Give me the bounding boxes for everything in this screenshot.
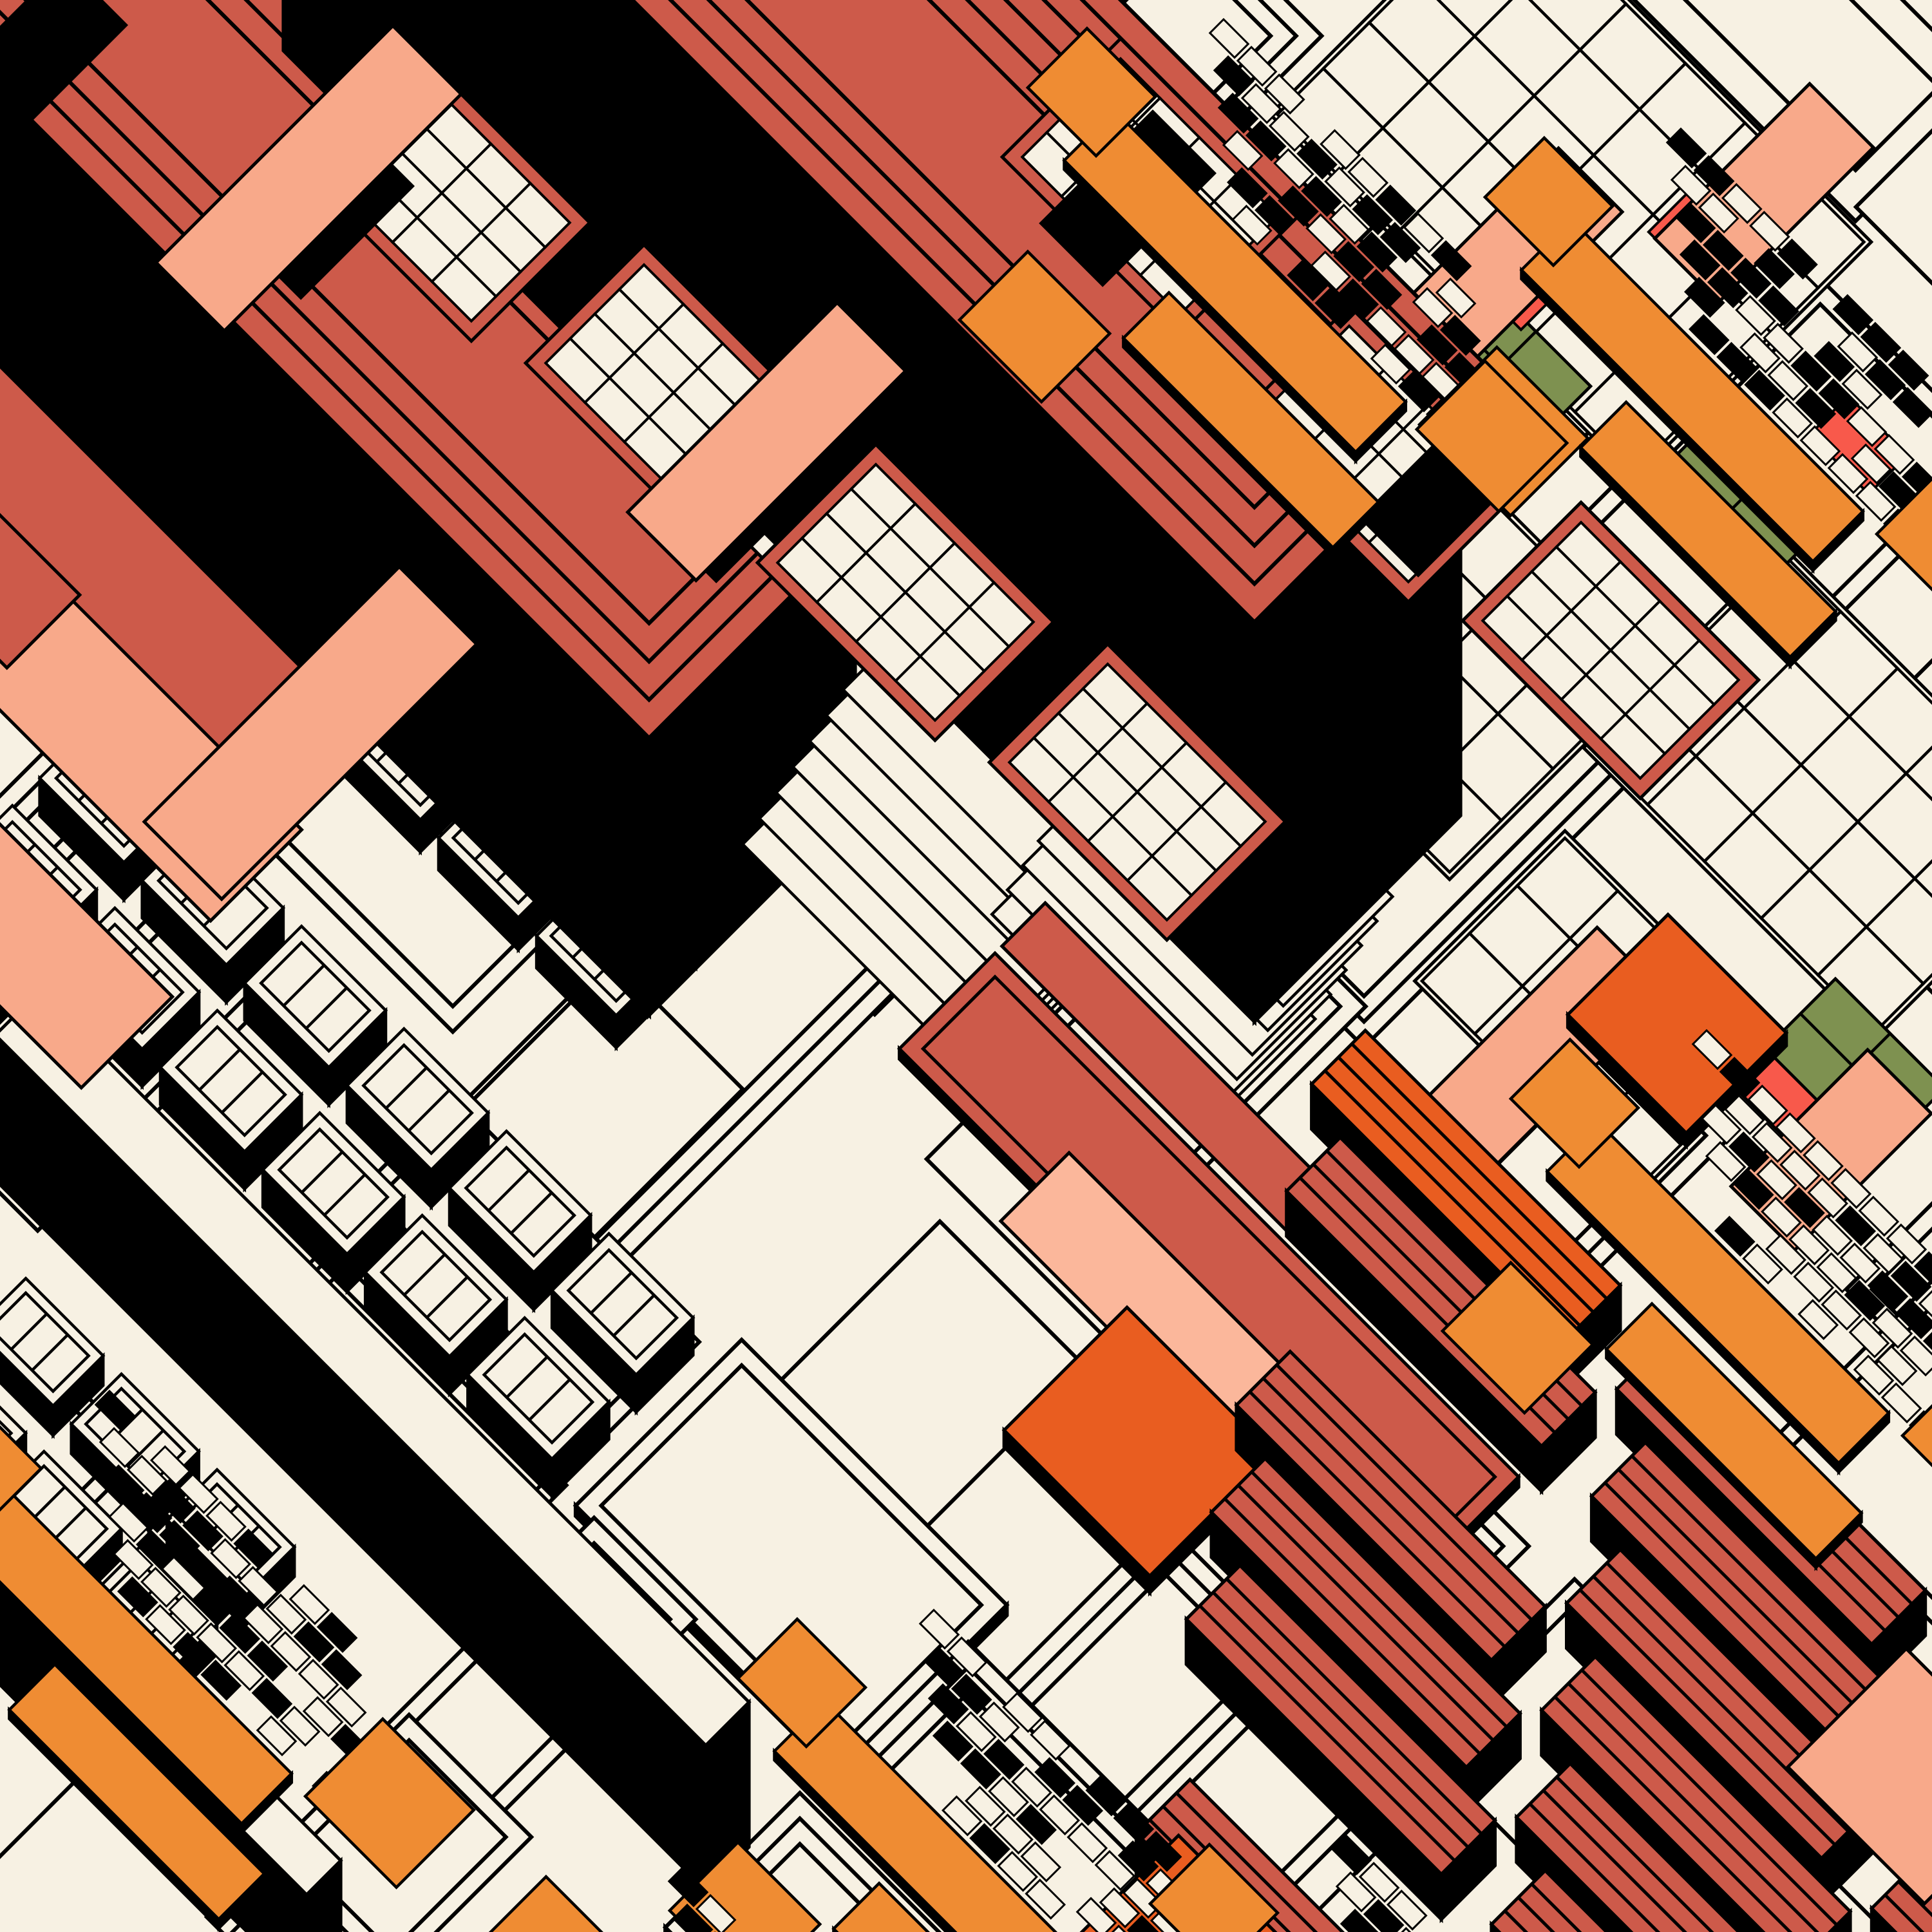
- isometric-generative-artwork: [0, 0, 1932, 1932]
- artwork-canvas: [0, 0, 1932, 1932]
